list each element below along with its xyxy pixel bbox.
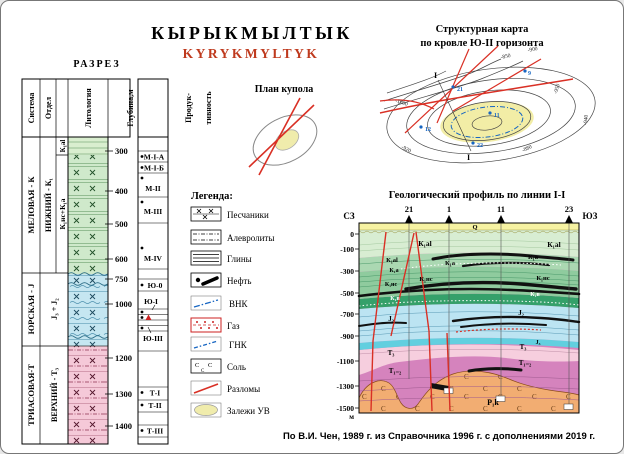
- figure-canvas: С С КЫРЫКМЫЛТЫК KYRYKMYLTYK РАЗРЕЗ Систе…: [1, 1, 624, 454]
- strat-label: К₁в: [530, 292, 540, 298]
- dome-plan-heading: План купола: [255, 84, 314, 95]
- direction-se: ЮЗ: [583, 211, 598, 221]
- profile-depth-label: -900: [340, 332, 354, 341]
- header-productivity-line2: тивность: [204, 91, 213, 125]
- structural-map: Структурная карта по кровле Ю-II горизон…: [380, 24, 601, 175]
- legend-label: Нефть: [227, 276, 251, 286]
- header-otdel: Отдел: [44, 96, 53, 119]
- legend-item-faults: Разломы: [191, 381, 260, 395]
- legend-heading: Легенда:: [191, 191, 233, 202]
- profile-depth-scale: 0 -100 -300 -500 -700 -900 -1100 -1300 -…: [337, 230, 360, 421]
- header-productivity-line1: Продук-: [184, 93, 193, 123]
- prod-label: Ю-III: [143, 334, 163, 343]
- profile-depth-label: -1100: [337, 357, 354, 366]
- depth-scale: 300 400 500 600 750 1000 1200 1300 1400: [105, 146, 132, 431]
- contour-label: -940: [583, 114, 590, 125]
- prod-label: Т-III: [147, 427, 163, 436]
- strat-label: Т₃: [520, 343, 527, 351]
- deposit-swatch: [195, 405, 218, 416]
- yarus-k1al: К₁al: [59, 140, 67, 153]
- prod-label: Ю-0: [148, 281, 163, 290]
- profile-depth-label: -700: [340, 310, 354, 319]
- well-number: 22: [477, 143, 483, 149]
- page-title: КЫРЫКМЫЛТЫК: [151, 23, 353, 43]
- prod-label: М-II: [145, 184, 160, 193]
- strat-label: J₂: [518, 309, 524, 317]
- strat-label: К₁а: [445, 260, 456, 267]
- header-glubina: Глубина,м: [126, 89, 135, 127]
- well-number: 9: [528, 71, 531, 77]
- well-number: 12: [425, 127, 431, 133]
- strat-label: К₁нс: [536, 275, 549, 282]
- lithology-column: [68, 137, 108, 444]
- strat-label: К₁al: [386, 257, 398, 264]
- legend-label: ГНК: [229, 340, 248, 350]
- profile-well-number: 21: [405, 204, 414, 214]
- contour-label: -850: [500, 53, 511, 61]
- legend-item-salt: С С С Соль: [191, 359, 246, 374]
- dome-plan: План купола: [245, 84, 326, 175]
- legend: Легенда: Песчаники Алевролиты Глины Нефт…: [191, 191, 274, 417]
- system-triassic: ТРИАСОВАЯ-Т: [26, 364, 36, 426]
- depth-label: 300: [115, 146, 128, 156]
- legend-item-deposits: Залежи УВ: [191, 403, 270, 417]
- profile-mark-top: I: [434, 71, 437, 80]
- direction-nw: СЗ: [343, 211, 354, 221]
- strat-label: К₁а: [528, 254, 539, 261]
- profile-depth-label: 0: [350, 230, 354, 239]
- legend-item-owc: ВНК: [191, 296, 249, 310]
- legend-label: Соль: [227, 362, 246, 372]
- profile-heading: Геологический профиль по линии I-I: [389, 190, 566, 201]
- profile-mark-bottom: I: [467, 153, 470, 162]
- legend-label: Разломы: [227, 384, 260, 394]
- strat-label: J₃: [536, 340, 541, 346]
- legend-label: ВНК: [229, 299, 249, 309]
- strat-label-q: Q: [472, 224, 477, 231]
- prod-label: М-I-А: [144, 153, 165, 162]
- profile-depth-label: -1300: [337, 382, 355, 391]
- strat-label: К₁нс: [419, 276, 432, 283]
- page-title-latin: KYRYKMYLTYK: [183, 46, 320, 61]
- header-litologia: Литология: [84, 88, 93, 128]
- legend-label: Песчаники: [227, 210, 269, 220]
- depth-label: 750: [115, 274, 128, 284]
- strat-label: К₁al: [547, 240, 561, 249]
- profile-well-number: 1: [447, 204, 451, 214]
- depth-label: 400: [115, 186, 128, 196]
- legend-label: Глины: [227, 254, 252, 264]
- salt-letter: С: [195, 362, 199, 369]
- razrez-heading: РАЗРЕЗ: [73, 59, 120, 70]
- strat-label: Т₃: [388, 349, 395, 357]
- contour-label: -950: [553, 83, 561, 95]
- profile-well-number: 11: [497, 204, 505, 214]
- contour-label: -900: [527, 46, 538, 54]
- depth-label: 600: [115, 254, 128, 264]
- prod-label: Ю-I: [144, 297, 158, 306]
- profile-depth-label: -500: [340, 289, 354, 298]
- strat-label: К₁а: [389, 268, 398, 274]
- profile-depth-unit: м: [349, 413, 354, 421]
- depth-label: 1300: [115, 389, 132, 399]
- legend-item-oil: Нефть: [191, 273, 251, 287]
- prod-label: Т-II: [148, 401, 161, 410]
- strat-label: Т₁₋₂: [519, 359, 532, 367]
- legend-label: Алевролиты: [227, 233, 274, 243]
- otdel-j3-j2: J₃ + J₂: [50, 298, 59, 320]
- yarus-k1nc-k1a: К₁нс+К₁а: [58, 198, 67, 229]
- legend-label: Газ: [227, 321, 240, 331]
- strat-label: К₁al: [418, 239, 432, 248]
- profile-depth-label: -300: [340, 267, 354, 276]
- profile-depth-label: -100: [340, 245, 354, 254]
- prod-label: М-IV: [144, 254, 162, 263]
- otdel-lower-k1: НИЖНИЙ - К₁: [44, 177, 53, 231]
- well-number: 21: [457, 87, 463, 93]
- productivity-column: М-I-А М-I-Б М-II М-III М-IV Ю-0 Ю-I Ю-II…: [138, 137, 168, 444]
- well-number: 11: [494, 113, 500, 119]
- prod-label: Т-I: [150, 389, 161, 398]
- strat-label: Т₁₋₂: [389, 367, 402, 375]
- map-heading-line1: Структурная карта: [436, 24, 530, 35]
- source-caption: По В.И. Чен, 1989 г. из Справочника 1996…: [283, 431, 595, 442]
- strat-label: К₁в: [390, 296, 400, 302]
- geological-figure-page: С С КЫРЫКМЫЛТЫК KYRYKMYLTYK РАЗРЕЗ Систе…: [0, 0, 624, 454]
- otdel-upper-t3: ВЕРХНИЙ - Т₃: [50, 367, 59, 422]
- legend-item-goc: ГНК: [191, 337, 248, 351]
- title-block: КЫРЫКМЫЛТЫК KYRYKMYLTYK: [151, 23, 353, 61]
- salt-letter: С: [208, 362, 212, 369]
- system-jurassic: ЮРСКАЯ - J: [26, 283, 36, 335]
- legend-item-sandstone: Песчаники: [191, 207, 269, 221]
- map-heading-line2: по кровле Ю-II горизонта: [420, 38, 544, 49]
- header-sistema: Система: [27, 93, 36, 124]
- legend-item-siltstone: Алевролиты: [191, 230, 274, 244]
- legend-item-clay: Глины: [191, 251, 252, 265]
- profile-well-number: 23: [565, 204, 574, 214]
- strat-column: РАЗРЕЗ Система Отдел Ярус Литология Глуб…: [1, 59, 213, 444]
- strat-label: J₂: [388, 315, 394, 323]
- depth-label: 1200: [115, 353, 132, 363]
- strat-label: К₁нс: [385, 282, 398, 288]
- depth-label: 500: [115, 219, 128, 229]
- strat-label: Р₁k: [487, 398, 499, 407]
- prod-label: М-III: [144, 207, 162, 216]
- geological-profile: Геологический профиль по линии I-I: [337, 190, 598, 421]
- system-cretaceous: МЕЛОВАЯ - К: [26, 176, 36, 234]
- depth-label: 1000: [115, 299, 132, 309]
- prod-label: М-I-Б: [144, 164, 164, 173]
- legend-item-gas: Газ: [191, 318, 240, 332]
- contour-label: -880: [521, 144, 533, 154]
- legend-label: Залежи УВ: [227, 406, 270, 416]
- depth-label: 1400: [115, 421, 132, 431]
- profile-depth-label: -1500: [337, 404, 355, 413]
